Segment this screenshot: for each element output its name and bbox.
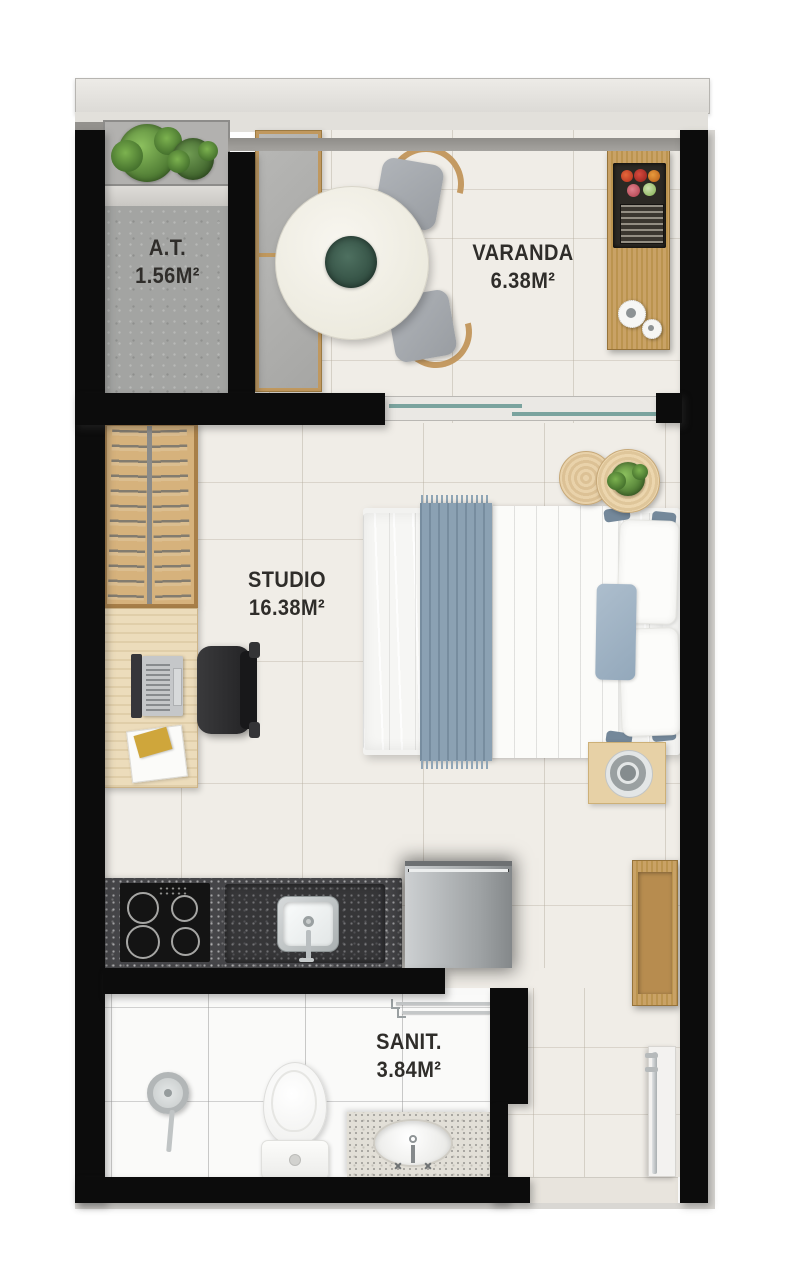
wall-right: [680, 130, 708, 1203]
vanity-faucet-stem: [411, 1145, 415, 1163]
wall-bottom: [75, 1177, 530, 1203]
nightstand-plate-center: [620, 765, 636, 781]
food-plate: [621, 170, 633, 182]
hall-cabinet-inset: [638, 872, 672, 994]
laptop-screen: [131, 654, 142, 718]
facade-rail-line: [228, 138, 702, 151]
shower-head-center: [164, 1089, 172, 1097]
office-chair-armrest-top: [249, 642, 260, 658]
entry-threshold: [530, 1177, 678, 1204]
towel-bar-lower: [402, 1011, 490, 1014]
room-area: 1.56M²: [115, 263, 220, 291]
entry-door-handle-hook: [645, 1053, 658, 1058]
at-sill: [103, 186, 230, 206]
bed-accent-pillow: [595, 584, 637, 681]
toilet-seat-line: [271, 1070, 317, 1132]
laptop-keyboard: [146, 661, 170, 711]
wall-at-divider: [228, 152, 255, 395]
room-area: 16.38M²: [228, 595, 346, 623]
cooktop-burner: [171, 927, 200, 956]
sink-faucet-handle: [299, 958, 314, 962]
wall-bottom-outer-edge: [75, 1203, 715, 1209]
planter-plant-left: [118, 124, 176, 182]
office-chair-back: [240, 651, 257, 729]
wardrobe-rail: [147, 426, 152, 604]
wall-slider-stub: [656, 393, 682, 423]
entry-door-handle-hook: [645, 1067, 658, 1072]
throw-fringe-bottom: [421, 760, 491, 769]
room-name: SANIT.: [350, 1029, 468, 1057]
office-chair-armrest-bottom: [249, 722, 260, 738]
wall-varanda-studio: [75, 393, 385, 425]
table-centerpiece-plant: [325, 236, 377, 288]
fridge-handle: [409, 869, 508, 872]
sliding-door-glass-left: [389, 404, 522, 408]
vanity-handle-left: [394, 1162, 402, 1170]
fridge: [405, 861, 512, 968]
sink-drain: [303, 916, 314, 927]
food-plate: [627, 184, 640, 197]
planter-plant-right: [172, 138, 214, 180]
sink-faucet-stem: [306, 930, 311, 961]
cooktop-burner: [127, 892, 159, 924]
room-area: 6.38M²: [462, 268, 584, 296]
sliding-door-glass-right: [512, 412, 656, 416]
room-label-studio: STUDIO 16.38M²: [228, 567, 346, 623]
serving-plate-large-center: [626, 308, 636, 318]
floor-plan-canvas: A.T. 1.56M² VARANDA 6.38M² STUDIO 16.38M…: [0, 0, 790, 1280]
facade-band: [75, 78, 710, 114]
food-plate: [648, 170, 660, 182]
side-table-plant: [611, 462, 645, 496]
towel-bar-upper: [396, 1002, 490, 1005]
wall-shaft: [490, 988, 528, 1104]
vanity-handle-right: [424, 1162, 432, 1170]
room-label-sanit: SANIT. 3.84M²: [350, 1029, 468, 1085]
cooktop-controls: [158, 886, 188, 896]
bed-throw-blanket: [420, 503, 492, 761]
toilet-flush-button: [289, 1154, 301, 1166]
room-name: STUDIO: [228, 567, 346, 595]
laptop-trackpad: [173, 668, 182, 706]
room-label-varanda: VARANDA 6.38M²: [462, 240, 584, 296]
towel-bar-hook: [397, 1008, 406, 1018]
food-plate: [634, 169, 647, 182]
cooktop-burner: [171, 895, 198, 922]
wall-left: [75, 130, 105, 1203]
wardrobe-hangers-left: [108, 430, 148, 601]
cooktop-burner: [126, 925, 160, 959]
wardrobe-hangers-right: [151, 430, 191, 601]
food-plate: [643, 183, 656, 196]
room-area: 3.84M²: [350, 1057, 468, 1085]
grill-grate: [620, 204, 664, 244]
room-label-at: A.T. 1.56M²: [115, 235, 220, 291]
wall-kitchen-bathroom: [103, 968, 445, 994]
wall-right-outer-edge: [708, 130, 715, 1203]
vanity-faucet-dot: [409, 1135, 417, 1143]
room-name: VARANDA: [462, 240, 584, 268]
sliding-door-track: [383, 396, 660, 421]
serving-plate-small-center: [648, 325, 654, 331]
room-name: A.T.: [115, 235, 220, 263]
